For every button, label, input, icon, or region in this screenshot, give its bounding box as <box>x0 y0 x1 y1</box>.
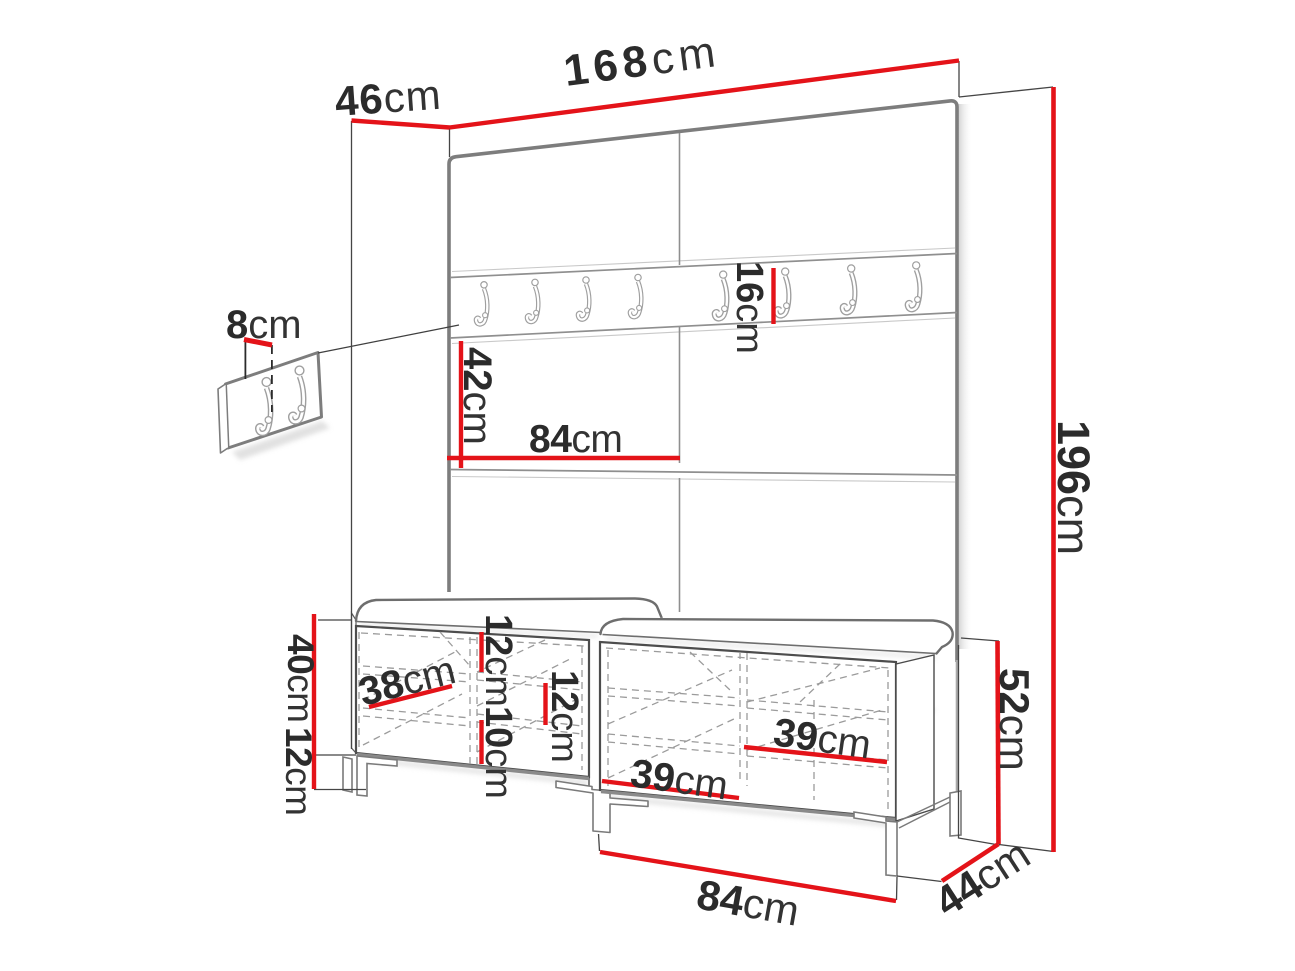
svg-text:12cm: 12cm <box>278 727 319 815</box>
svg-text:12cm: 12cm <box>477 614 519 707</box>
svg-text:46cm: 46cm <box>333 71 443 125</box>
svg-text:40cm: 40cm <box>280 634 321 722</box>
svg-text:84cm: 84cm <box>529 418 622 461</box>
svg-text:12cm: 12cm <box>543 670 585 763</box>
svg-text:10cm: 10cm <box>477 706 519 799</box>
svg-text:16cm: 16cm <box>728 261 770 354</box>
svg-text:8cm: 8cm <box>226 303 302 347</box>
svg-text:52cm: 52cm <box>991 668 1038 771</box>
svg-text:196cm: 196cm <box>1048 420 1099 555</box>
svg-text:42cm: 42cm <box>455 347 499 445</box>
